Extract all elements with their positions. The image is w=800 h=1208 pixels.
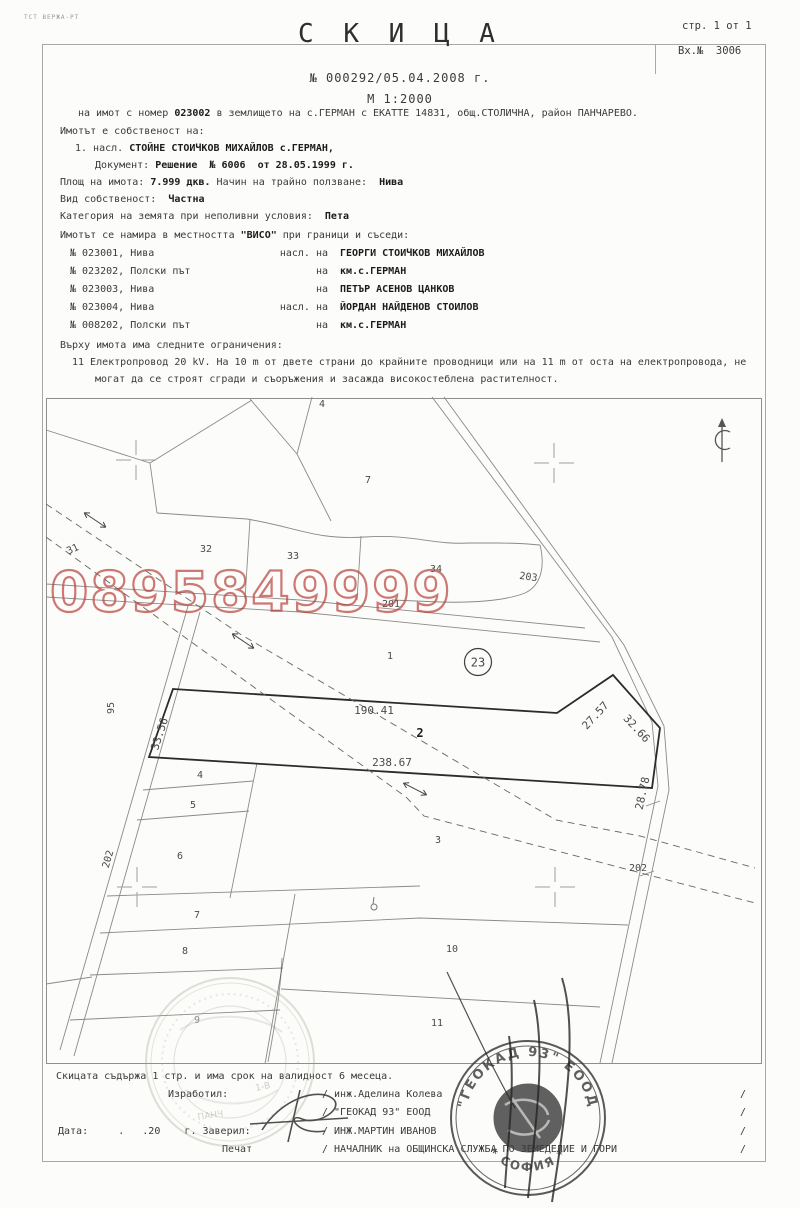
signatory-name: / ИНЖ.МАРТИН ИВАНОВ [322, 1126, 436, 1138]
neighbors-intro-post: при граници и съседи: [277, 230, 409, 241]
subject-pre: на имот с номер [78, 108, 174, 119]
parcel-label: 9 [194, 1015, 200, 1026]
ownership-intro: Имотът е собственост на: [60, 126, 205, 138]
parcel-label: 190.41 [354, 704, 394, 717]
parcel-label: 28.78 [633, 776, 653, 811]
doc-label: Документ: [95, 160, 155, 171]
powerline-arrow-icon [83, 510, 428, 797]
signatory-name: / "ГЕОКАД 93" ЕООД [322, 1107, 430, 1119]
circled-parcel-number: 23 [471, 656, 485, 670]
made-by-label: Изработил: [168, 1089, 228, 1101]
map-labels: 473132333420320119533.56190.412238.6727.… [65, 399, 652, 1029]
parcel-label: 3 [435, 835, 441, 846]
parcel-label: 10 [446, 944, 458, 955]
restrictions-intro: Върху имота има следните ограничения: [60, 340, 283, 352]
cadastral-sketch-document: 23 473132333420320119533.56190.412238.67… [0, 0, 800, 1208]
parcel-label: 32 [200, 544, 212, 555]
neighbors-intro: Имотът се намира в местността "ВИСО" при… [60, 230, 409, 242]
neighbor-rows: № 023001, Ниванасл. наГЕОРГИ СТОИЧКОВ МИ… [70, 248, 485, 338]
document-title: С К И Ц А [0, 28, 800, 40]
category-label: Категория на земята при неполивни услови… [60, 211, 325, 222]
scan-corner-mark: ТСТ ВЕРЖА-РТ [24, 12, 79, 24]
subject-post: в землището на с.ГЕРМАН с ЕКАТТЕ 14831, … [210, 108, 637, 119]
restriction-line: 11 Електропровод 20 kV. На 10 m от двете… [72, 357, 746, 369]
parcel-label: 238.67 [372, 756, 412, 769]
parcel-label: 95 [106, 702, 117, 714]
page-count: стр. 1 от 1 [682, 20, 752, 32]
phone-watermark: 0895849999 [50, 560, 453, 624]
signature-slash: / [740, 1089, 746, 1101]
parcel-label: 7 [365, 475, 371, 486]
usage-label: Начин на трайно ползване: [211, 177, 380, 188]
map-scale: М 1:2000 [0, 93, 800, 105]
parcel-label: 11 [431, 1018, 443, 1029]
signatory-name: / инж.Аделина Колева [322, 1089, 442, 1101]
parcel-label: 4 [319, 399, 325, 410]
parcel-lines [46, 397, 669, 1064]
subject-line: на имот с номер 023002 в землището на с.… [78, 108, 638, 120]
neighbor-row: № 008202, Полски пътнакм.с.ГЕРМАН [70, 320, 485, 338]
parcel-label: 5 [190, 800, 196, 811]
kind-value: Частна [168, 194, 204, 205]
usage-value: Нива [379, 177, 403, 188]
kind-label: Вид собственост: [60, 194, 168, 205]
neighbor-row: № 023001, Ниванасл. наГЕОРГИ СТОИЧКОВ МИ… [70, 248, 485, 266]
parcel-label: 32.66 [621, 712, 653, 745]
neighbor-row: № 023003, НиванаПЕТЪР АСЕНОВ ЦАНКОВ [70, 284, 485, 302]
neighbors-intro-pre: Имотът се намира в местността [60, 230, 241, 241]
parcel-label: 1 [387, 651, 393, 662]
validity-note: Скицата съдържа 1 стр. и има срок на вал… [56, 1071, 393, 1083]
parcel-label: 202 [101, 849, 117, 869]
neighbor-row: № 023004, Ниванасл. наЙОРДАН НАЙДЕНОВ СТ… [70, 302, 485, 320]
doc-value: Решение № 6006 от 28.05.1999 г. [155, 160, 354, 171]
owner-prefix: 1. насл. [75, 143, 129, 154]
signature-slash: / [740, 1107, 746, 1119]
survey-cross-icon [116, 440, 575, 907]
area-label: Площ на имота: [60, 177, 150, 188]
parcel-label: 7 [194, 910, 200, 921]
parcel-label: 8 [182, 946, 188, 957]
signature-slash: / [740, 1144, 746, 1156]
parcel-label: 2 [416, 726, 423, 740]
owner-name: СТОЙНЕ СТОИЧКОВ МИХАЙЛОВ с.ГЕРМАН, [129, 143, 334, 154]
area-line: Площ на имота: 7.999 дкв. Начин на трайн… [60, 177, 403, 189]
signatory-name: / НАЧАЛНИК на ОБЩИНСКА СЛУЖБА ПО ЗЕМЕДЕЛ… [322, 1144, 617, 1156]
parcel-label: 31 [65, 542, 81, 557]
document-line: Документ: Решение № 6006 от 28.05.1999 г… [95, 160, 354, 172]
parcel-label: 4 [197, 770, 203, 781]
subject-parcel-id: 023002 [174, 108, 210, 119]
signature-slash: / [740, 1126, 746, 1138]
kind-line: Вид собственост: Частна [60, 194, 205, 206]
subject-parcel-outline [149, 675, 660, 788]
parcel-label: 27.57 [579, 699, 611, 732]
owner-line: 1. насл. СТОЙНЕ СТОИЧКОВ МИХАЙЛОВ с.ГЕРМ… [75, 143, 334, 155]
document-number: № 000292/05.04.2008 г. [0, 72, 800, 84]
restriction-line: могат да се строят сгради и съоръжения и… [95, 374, 559, 386]
parcel-label: 203 [519, 571, 538, 584]
north-arrow-icon [715, 418, 730, 462]
category-value: Пета [325, 211, 349, 222]
seal-label: Печат [222, 1144, 252, 1156]
parcel-label: 202 [629, 863, 647, 874]
survey-point-icon [371, 897, 377, 910]
neighbor-row: № 023202, Полски пътнакм.с.ГЕРМАН [70, 266, 485, 284]
parcel-label: 33.56 [148, 716, 171, 752]
locality-name: "ВИСО" [241, 230, 277, 241]
parcel-label: 6 [177, 851, 183, 862]
date-approved-label: Дата: . .20 г. Заверил: [58, 1126, 251, 1138]
entry-number: Вх.№ 3006 [678, 45, 741, 57]
area-value: 7.999 дкв. [150, 177, 210, 188]
category-line: Категория на земята при неполивни услови… [60, 211, 349, 223]
